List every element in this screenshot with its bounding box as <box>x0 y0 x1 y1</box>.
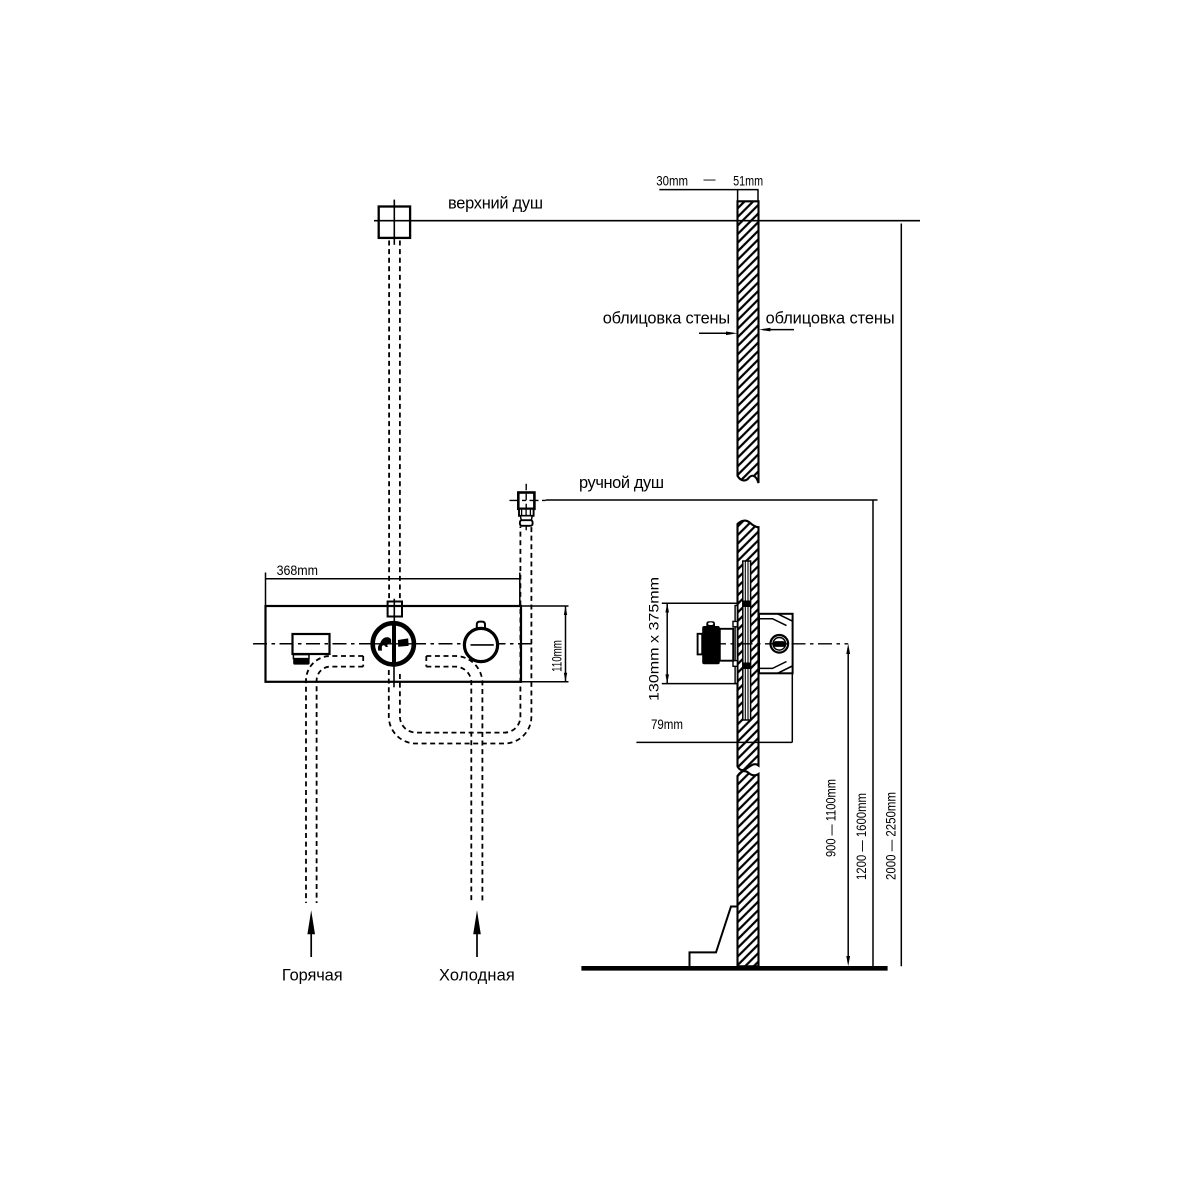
svg-text:130mm x 375mm: 130mm x 375mm <box>647 577 662 701</box>
svg-text:Холодная: Холодная <box>439 967 515 985</box>
svg-text:1200 — 1600mm: 1200 — 1600mm <box>854 793 869 880</box>
svg-text:2000 — 2250mm: 2000 — 2250mm <box>884 792 899 880</box>
svg-text:79mm: 79mm <box>651 717 683 732</box>
svg-text:облицовка стены: облицовка стены <box>766 309 895 327</box>
svg-text:110mm: 110mm <box>550 640 565 672</box>
svg-text:30mm: 30mm <box>656 173 688 188</box>
svg-text:51mm: 51mm <box>733 173 763 188</box>
svg-text:Горячая: Горячая <box>282 967 343 985</box>
svg-text:ручной душ: ручной душ <box>579 474 664 492</box>
svg-text:368mm: 368mm <box>277 563 318 578</box>
svg-text:верхний душ: верхний душ <box>448 195 543 213</box>
svg-text:—: — <box>704 172 716 187</box>
svg-text:900 — 1100mm: 900 — 1100mm <box>824 779 839 857</box>
svg-text:облицовка стены: облицовка стены <box>603 309 731 327</box>
